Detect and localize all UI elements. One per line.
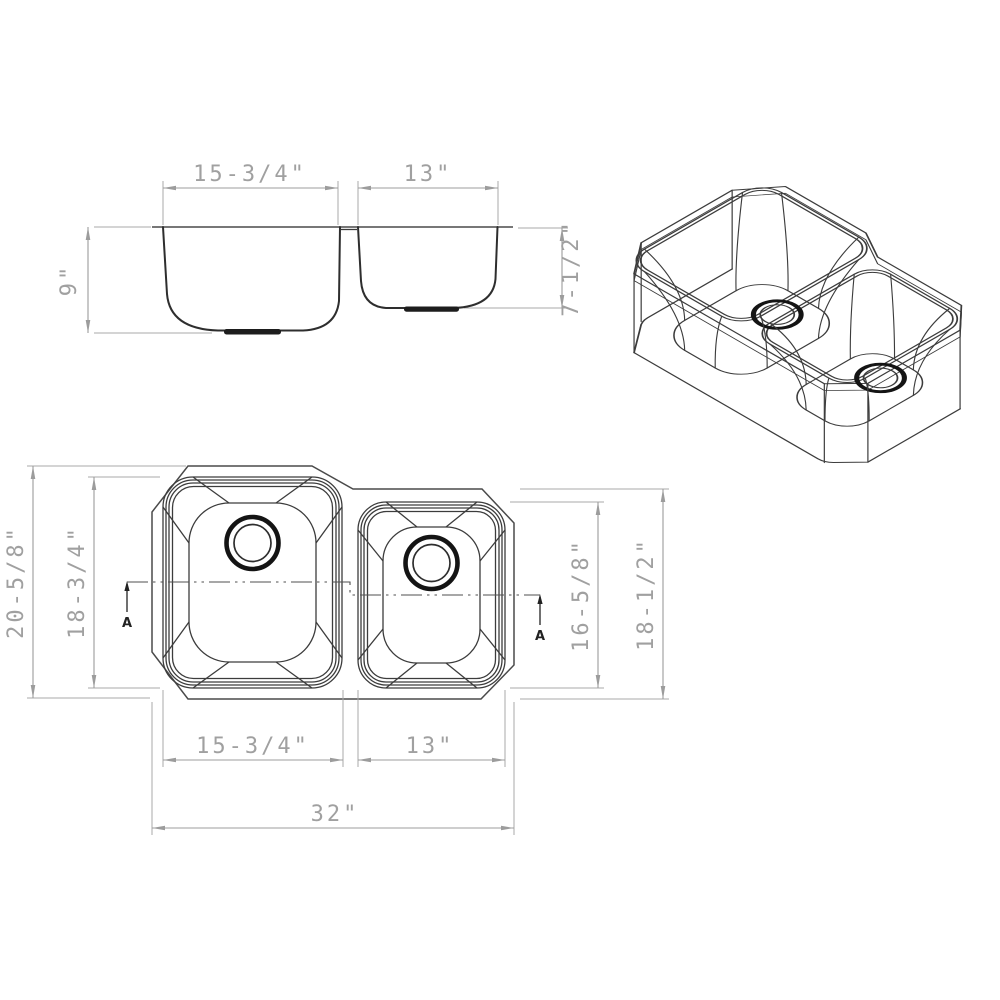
dim-plan-overall-width: 32" — [311, 802, 360, 827]
svg-text:A: A — [535, 629, 545, 644]
elevation-left-bowl — [163, 227, 340, 331]
drawing-sheet: 15-3/4" 13" 9" 7-1/2" — [0, 0, 1000, 1000]
dim-elev-right-bowl-width: 13" — [404, 162, 453, 187]
elevation-left-drain — [224, 329, 281, 335]
dim-plan-right-bowl-width: 13" — [406, 734, 455, 759]
dim-elev-left-bowl-width: 15-3/4" — [193, 162, 307, 187]
section-marker-left: A — [122, 581, 132, 631]
isometric-view — [611, 173, 997, 475]
elevation-right-bowl — [358, 227, 498, 308]
svg-text:A: A — [122, 616, 132, 631]
dim-plan-left-bowl-width: 15-3/4" — [196, 734, 310, 759]
section-marker-right: A — [535, 594, 545, 644]
dim-elev-right-bowl-depth: 7-1/2" — [559, 219, 584, 316]
plan-view: A A 20-5/8" 18-3/4" 16-5/8" — [4, 466, 669, 835]
dim-plan-overall-length-left: 20-5/8" — [4, 525, 29, 639]
dim-plan-overall-length-right: 18-1/2" — [634, 537, 659, 651]
dim-elev-left-bowl-depth: 9" — [57, 264, 82, 297]
sink-technical-drawing: 15-3/4" 13" 9" 7-1/2" — [0, 0, 1000, 1000]
elevation-right-drain — [404, 307, 459, 312]
dim-plan-left-bowl-length: 18-3/4" — [65, 525, 90, 639]
dim-plan-right-bowl-length: 16-5/8" — [569, 538, 594, 652]
front-elevation-view: 15-3/4" 13" 9" 7-1/2" — [57, 162, 584, 335]
